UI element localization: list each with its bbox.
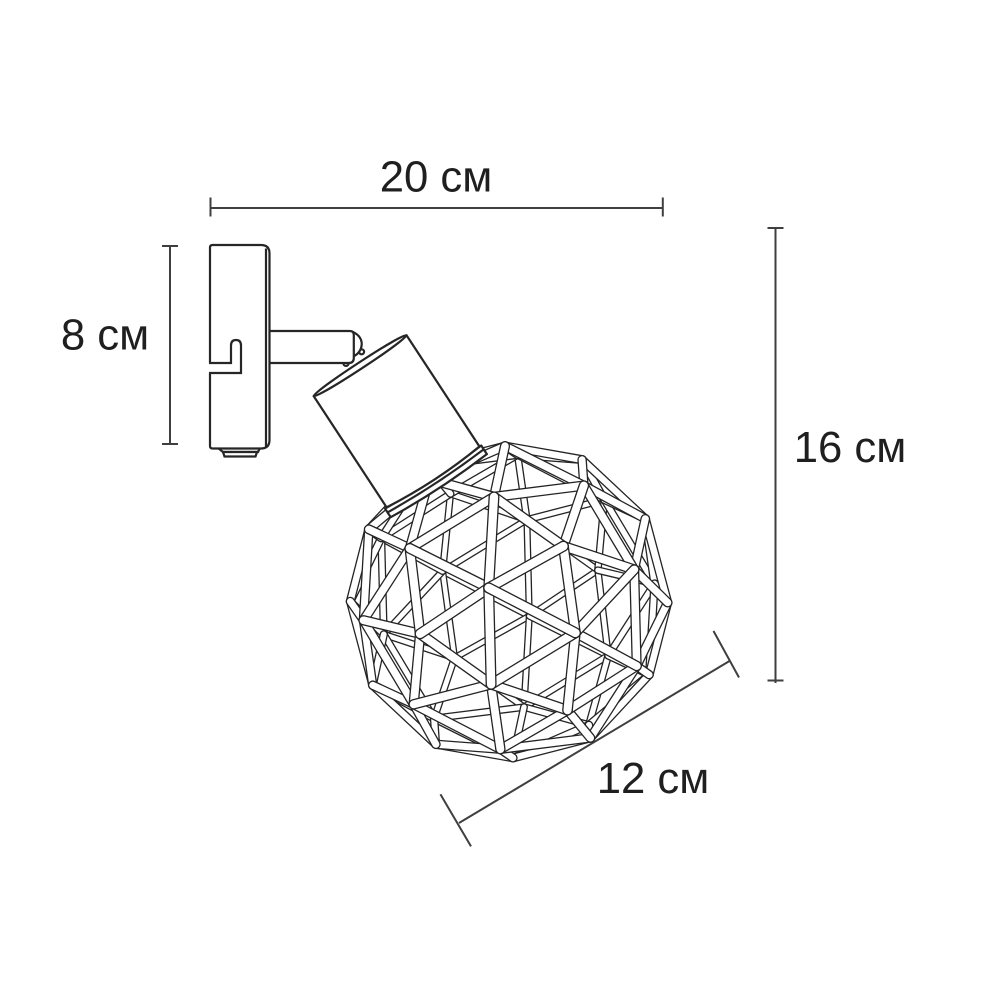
svg-text:12 см: 12 см <box>597 754 710 803</box>
svg-text:8 см: 8 см <box>61 311 149 360</box>
svg-text:20 см: 20 см <box>380 152 493 201</box>
svg-text:16 см: 16 см <box>794 423 907 472</box>
